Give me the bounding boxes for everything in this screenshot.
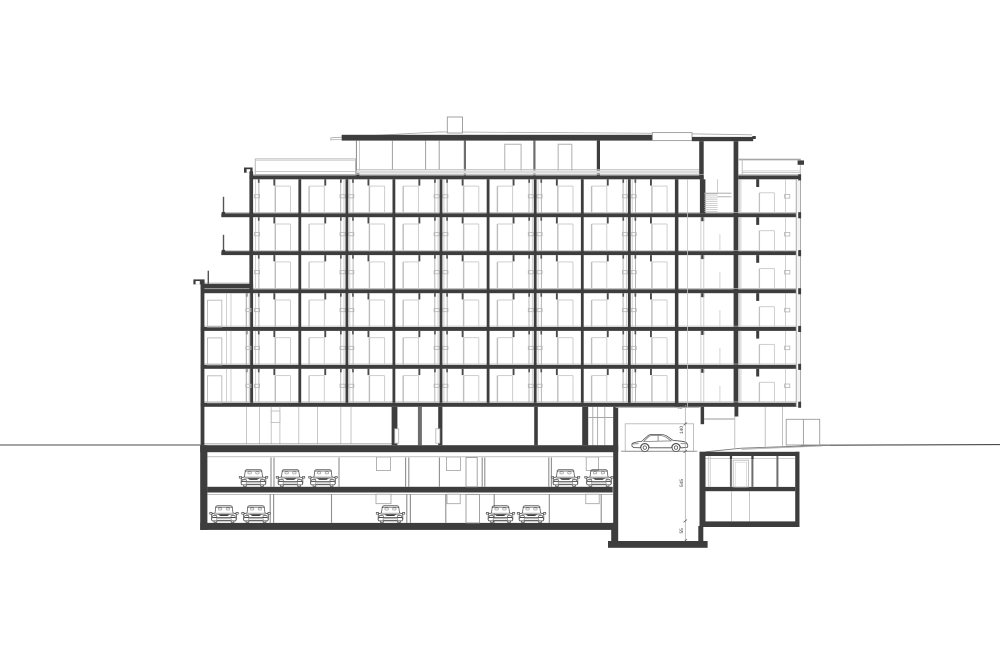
- svg-text:140: 140: [679, 426, 685, 434]
- svg-text:55: 55: [679, 528, 685, 534]
- svg-text:32: 32: [677, 404, 682, 409]
- svg-text:545: 545: [679, 479, 685, 487]
